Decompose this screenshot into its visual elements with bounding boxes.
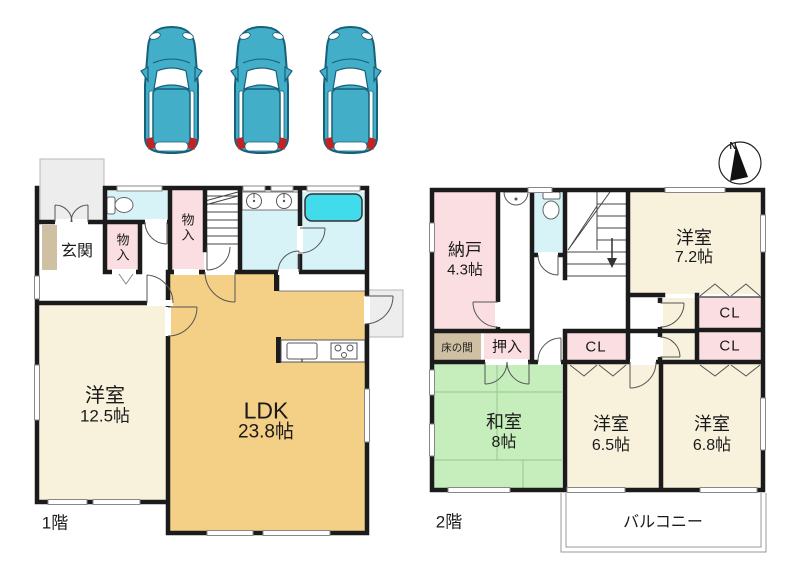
label-youshitsu68-size: 6.8帖 [693, 438, 731, 454]
label-balcony: バルコニー [623, 515, 703, 531]
room-nando [434, 192, 496, 329]
toilet-tank [543, 192, 560, 199]
label-cl-lower: CL [719, 339, 740, 354]
floor1-plan [35, 159, 404, 536]
label-youshitsu65-name: 洋室 [593, 415, 629, 433]
label-oshiire: 押入 [492, 340, 522, 355]
label-washitsu-size: 8帖 [492, 435, 517, 451]
label-nando-name: 納戸 [448, 242, 482, 259]
side-door-landing [367, 290, 403, 337]
label-youshitsu68-name: 洋室 [694, 415, 730, 433]
toilet-icon [543, 201, 559, 219]
kitchen-sink [287, 343, 317, 359]
label-monoire-hall: 物入 [116, 233, 129, 263]
label-youshitsu125-size: 12.5帖 [80, 408, 130, 425]
car-icon [231, 27, 292, 153]
toilet-tank [107, 197, 115, 214]
stairs-2f [565, 192, 628, 276]
bathtub [305, 194, 362, 221]
label-cl-upper: CL [719, 306, 740, 321]
car-icon [141, 27, 202, 153]
label-monoire-stairs: 物入 [181, 213, 194, 243]
genkan-step [42, 225, 57, 270]
label-ldk-name: LDK [244, 400, 289, 423]
label-youshitsu72-name: 洋室 [676, 229, 712, 247]
label-nando-size: 4.3帖 [447, 263, 483, 278]
toilet-icon [115, 198, 133, 213]
label-floor2: 2階 [436, 514, 462, 531]
label-cl-hall: CL [585, 340, 606, 355]
car-icon [320, 27, 381, 153]
floor-plan-drawing [0, 0, 800, 578]
label-compass-north: N [729, 142, 736, 152]
label-youshitsu65-size: 6.5帖 [592, 438, 630, 454]
stairs-1f [205, 192, 238, 244]
wash-hall-nook [279, 273, 366, 291]
label-tokonoma: 床の間 [441, 343, 473, 354]
label-genkan: 玄関 [61, 244, 93, 260]
label-ldk-size: 23.8帖 [238, 423, 294, 442]
compass-rose [719, 142, 761, 184]
parking-cars [141, 27, 381, 153]
label-floor1: 1階 [42, 515, 68, 532]
label-washitsu-name: 和室 [486, 413, 522, 431]
floor-plan-page: 玄関 物入 物入 洋室 12.5帖 LDK 23.8帖 1階 納戸 4.3帖 床… [0, 0, 800, 578]
entrance-porch [40, 159, 104, 221]
stove [331, 343, 357, 359]
label-youshitsu72-size: 7.2帖 [675, 250, 713, 266]
label-youshitsu125-name: 洋室 [85, 386, 125, 406]
